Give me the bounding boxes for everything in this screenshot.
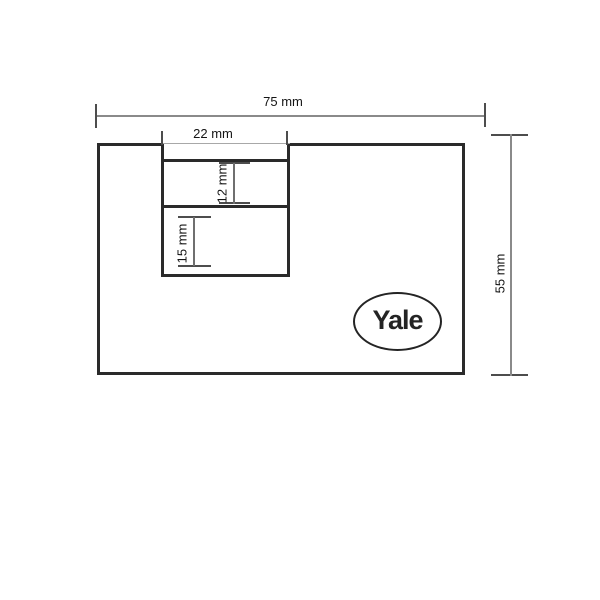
dim-tick-left-75mm: [95, 104, 97, 128]
dim-line-55mm: [510, 134, 512, 376]
yale-logo-text: Yale: [372, 307, 422, 336]
dim-label-15mm: 15 mm: [175, 194, 190, 294]
yale-logo-ellipse: Yale: [353, 292, 442, 351]
dim-line-12mm: [233, 163, 235, 204]
dim-label-22mm: 22 mm: [163, 126, 263, 141]
dim-line-15mm: [193, 217, 195, 266]
dim-label-75mm: 75 mm: [233, 94, 333, 109]
dim-line-75mm: [96, 115, 486, 117]
dim-label-55mm: 55 mm: [493, 224, 508, 324]
dim-tick-right-22mm: [286, 131, 288, 145]
diagram-canvas: 75 mm 22 mm 12 mm 15 mm 55 mm Yale: [0, 0, 600, 600]
dim-label-12mm: 12 mm: [215, 134, 230, 234]
dim-tick-right-75mm: [484, 103, 486, 127]
